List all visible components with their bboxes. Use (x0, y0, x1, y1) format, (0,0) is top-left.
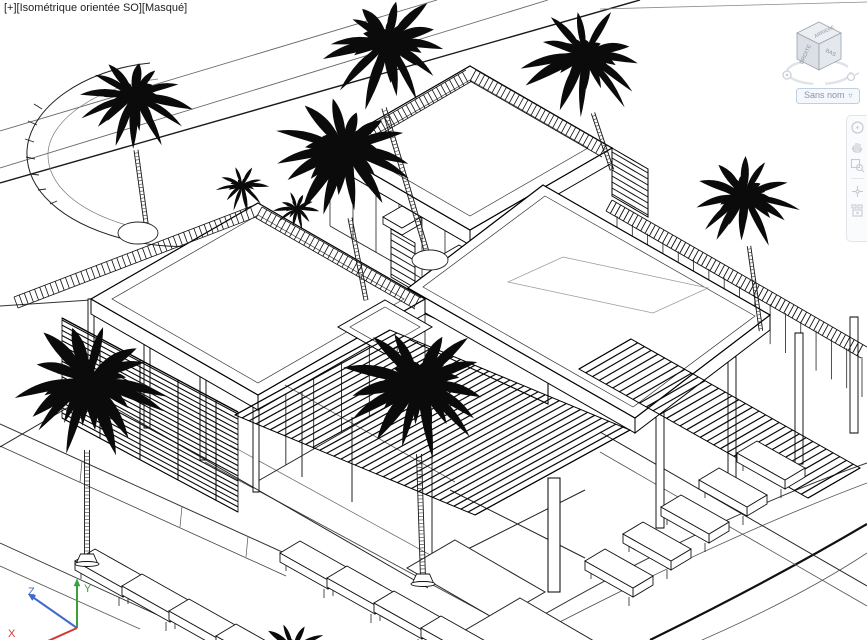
svg-text:Z: Z (28, 586, 35, 598)
viewcube-cube[interactable]: ARRIERE DROITE BAS (797, 22, 841, 70)
viewcube-roll-right-tail (855, 73, 859, 75)
viewport-controls: [+][Isométrique orientée SO][Masqué] (4, 2, 187, 14)
viewport-view-control[interactable]: [Isométrique orientée SO] (17, 2, 142, 14)
viewport-menu-plus[interactable]: [+] (4, 2, 17, 14)
ucs-name-label: Sans nom (804, 90, 845, 101)
cad-application-window: YZX [+][Isométrique orientée SO][Masqué]… (0, 0, 867, 640)
viewport-visual-style-control[interactable]: [Masqué] (142, 2, 187, 14)
svg-text:Y: Y (84, 583, 92, 595)
pan-hand-icon[interactable] (850, 139, 865, 154)
orbit-icon[interactable] (850, 184, 865, 199)
svg-text:X: X (8, 628, 16, 640)
viewcube[interactable]: ARRIERE DROITE BAS (779, 12, 865, 88)
viewcube-ucs-dropdown[interactable]: Sans nom ▿ (796, 88, 860, 104)
viewcube-roll-left-dot (786, 74, 789, 77)
steering-wheel-icon[interactable] (850, 120, 865, 135)
show-motion-icon[interactable] (850, 203, 865, 218)
zoom-icon[interactable] (850, 158, 865, 173)
chevron-down-icon: ▿ (849, 90, 853, 101)
viewcube-roll-right-icon[interactable] (848, 74, 855, 81)
drawing-viewport[interactable]: YZX (0, 0, 867, 640)
navigation-bar (846, 115, 867, 242)
navbar-divider (851, 178, 864, 179)
